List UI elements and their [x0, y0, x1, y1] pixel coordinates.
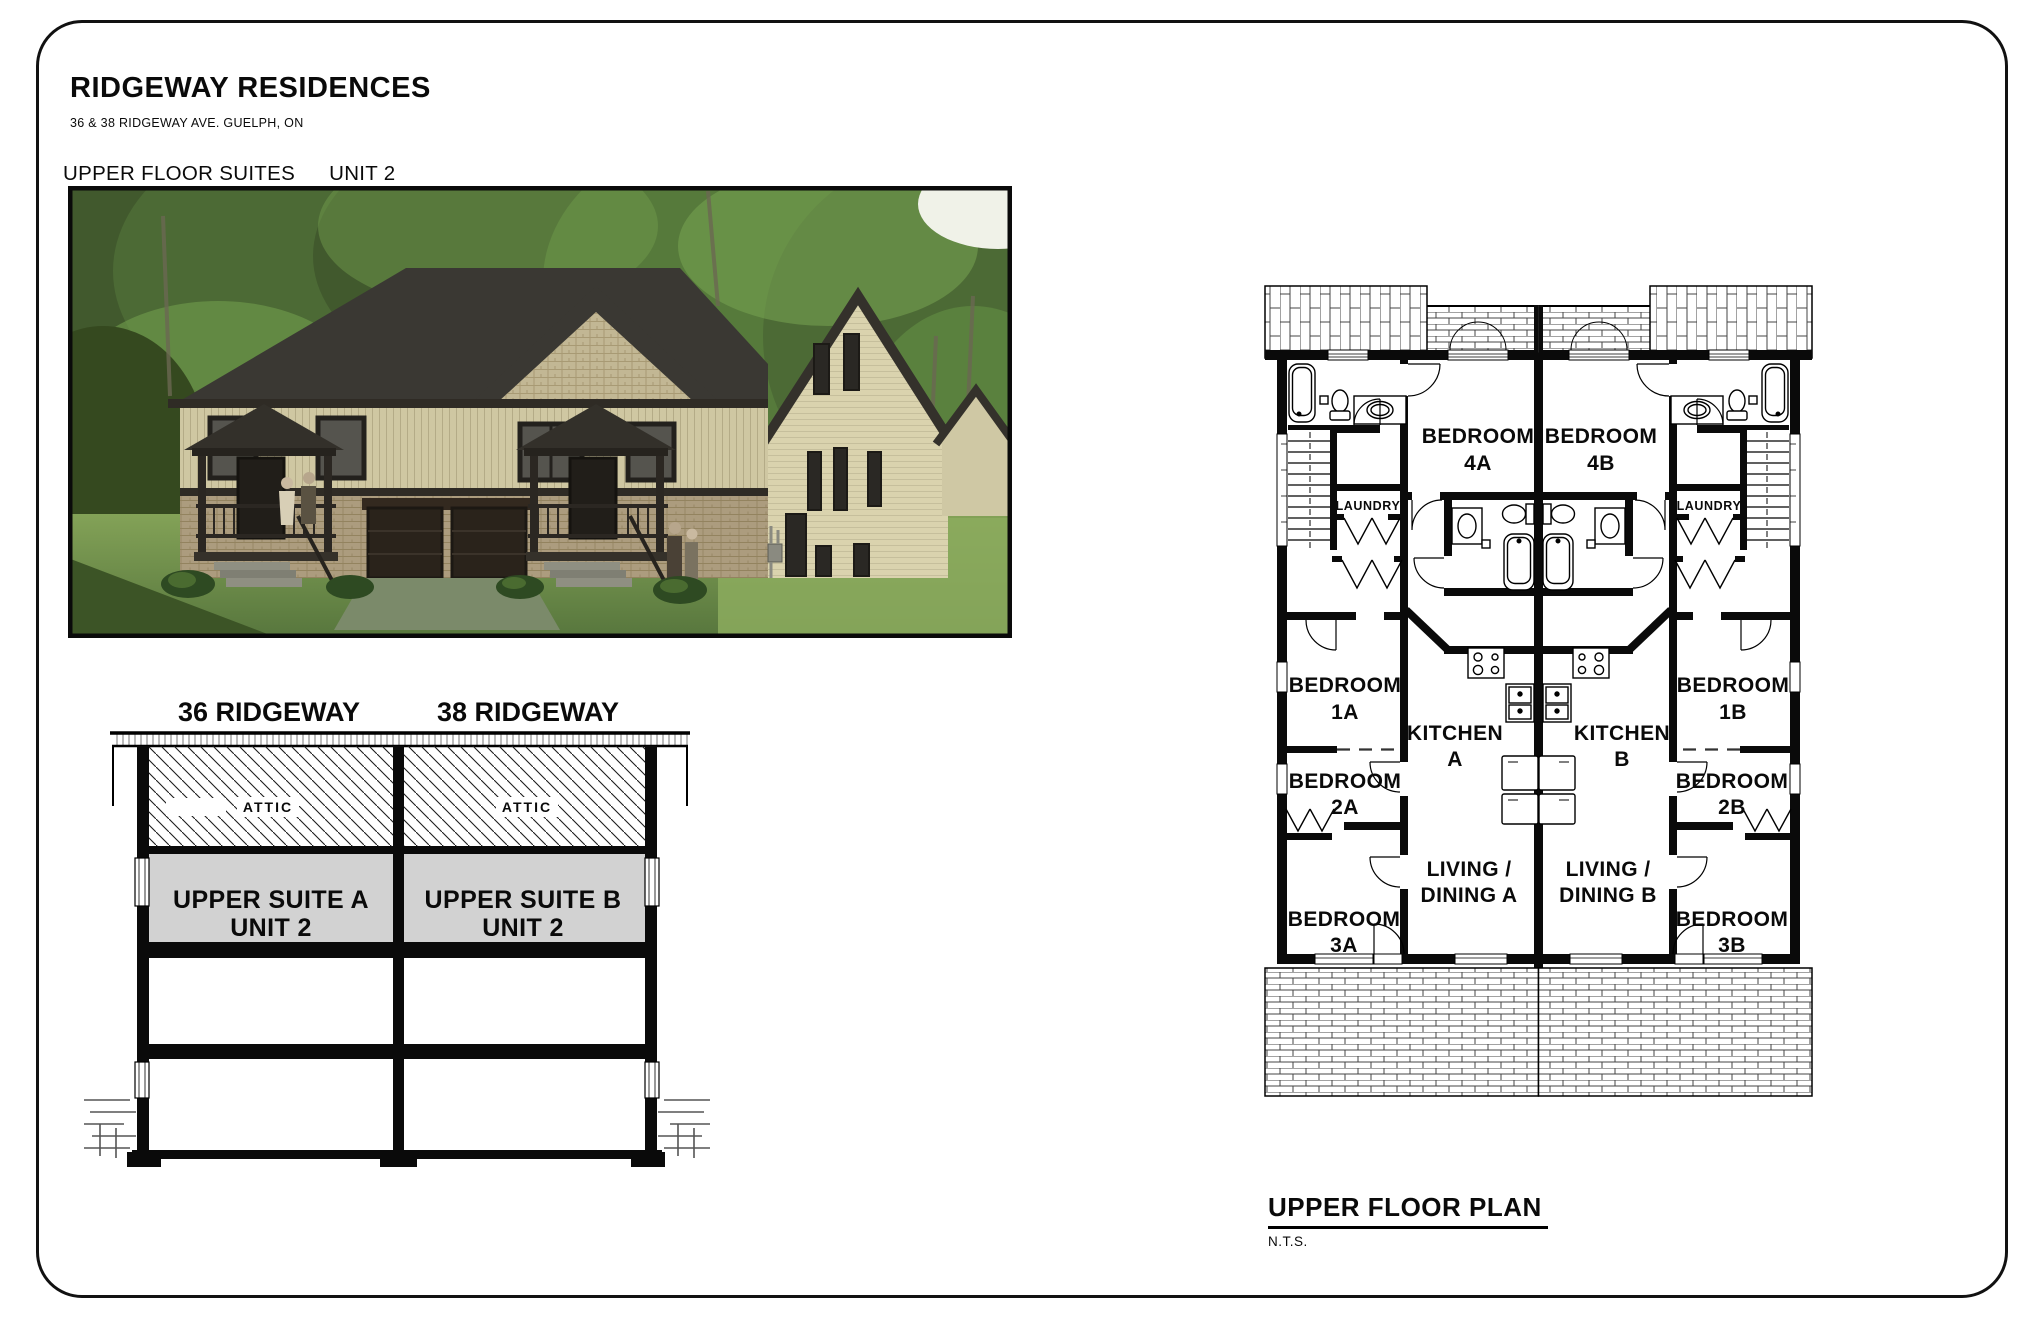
drawing-sheet: RIDGEWAY RESIDENCES 36 & 38 RIDGEWAY AVE…: [0, 0, 2040, 1320]
plan-title: UPPER FLOOR PLAN: [1268, 1192, 1548, 1229]
label-bedroom-2b: BEDROOM: [1676, 770, 1788, 793]
suite-b-label: UPPER SUITE B: [425, 886, 622, 914]
unit-label: UNIT 2: [329, 162, 395, 186]
svg-text:A: A: [1447, 748, 1463, 771]
sheet-label-row: UPPER FLOOR SUITES UNIT 2: [63, 162, 395, 186]
label-kitchen-b: KITCHEN: [1574, 722, 1670, 745]
suite-a-label: UPPER SUITE A: [173, 886, 369, 914]
svg-text:DINING B: DINING B: [1559, 884, 1657, 907]
label-laundry-b: LAUNDRY: [1677, 499, 1742, 513]
garage-door-left: [368, 508, 442, 578]
project-title: RIDGEWAY RESIDENCES: [70, 72, 431, 105]
section-drawing: 36 RIDGEWAY 38 RIDGEWAY ATTIC ATTIC UPPE…: [75, 693, 720, 1185]
plan-scale-note: N.T.S.: [1268, 1234, 1548, 1249]
label-laundry-a: LAUNDRY: [1336, 499, 1401, 513]
label-kitchen-a: KITCHEN: [1407, 722, 1503, 745]
label-bedroom-1b: BEDROOM: [1677, 674, 1789, 697]
attic-label-a: ATTIC: [243, 799, 293, 815]
svg-text:DINING A: DINING A: [1421, 884, 1518, 907]
label-bedroom-4a: BEDROOM: [1422, 425, 1534, 448]
label-bedroom-3a: BEDROOM: [1288, 908, 1400, 931]
exterior-rendering: [68, 186, 1012, 638]
project-address: 36 & 38 RIDGEWAY AVE. GUELPH, ON: [70, 116, 304, 130]
suite-b-unit: UNIT 2: [482, 914, 564, 942]
label-bedroom-4b: BEDROOM: [1545, 425, 1657, 448]
floor-plan-drawing: BEDROOM 4A BEDROOM 4B LAUNDRY LAUNDRY BE…: [1255, 275, 1820, 1110]
suite-a-unit: UNIT 2: [230, 914, 312, 942]
svg-text:3A: 3A: [1330, 934, 1358, 957]
label-living-b: LIVING /: [1566, 858, 1651, 881]
svg-text:2B: 2B: [1718, 796, 1746, 819]
attic-label-b: ATTIC: [502, 799, 552, 815]
svg-text:B: B: [1614, 748, 1630, 771]
upper-floor-plan: BEDROOM 4A BEDROOM 4B LAUNDRY LAUNDRY BE…: [1255, 275, 1820, 1110]
sheet-label: UPPER FLOOR SUITES: [63, 162, 295, 186]
plan-title-block: UPPER FLOOR PLAN N.T.S.: [1268, 1192, 1548, 1249]
svg-text:1A: 1A: [1331, 701, 1359, 724]
section-header-36: 36 RIDGEWAY: [178, 697, 360, 727]
rendering-image: [68, 186, 1012, 638]
label-living-a: LIVING /: [1427, 858, 1512, 881]
svg-text:4B: 4B: [1587, 452, 1615, 475]
svg-text:2A: 2A: [1331, 796, 1359, 819]
svg-text:1B: 1B: [1719, 701, 1747, 724]
building-section: 36 RIDGEWAY 38 RIDGEWAY ATTIC ATTIC UPPE…: [75, 693, 720, 1185]
label-bedroom-1a: BEDROOM: [1289, 674, 1401, 697]
eave-trim: [168, 399, 768, 408]
svg-text:3B: 3B: [1718, 934, 1746, 957]
garage-door-right: [452, 508, 526, 578]
label-bedroom-3b: BEDROOM: [1676, 908, 1788, 931]
section-header-38: 38 RIDGEWAY: [437, 697, 619, 727]
svg-text:4A: 4A: [1464, 452, 1492, 475]
label-bedroom-2a: BEDROOM: [1289, 770, 1401, 793]
